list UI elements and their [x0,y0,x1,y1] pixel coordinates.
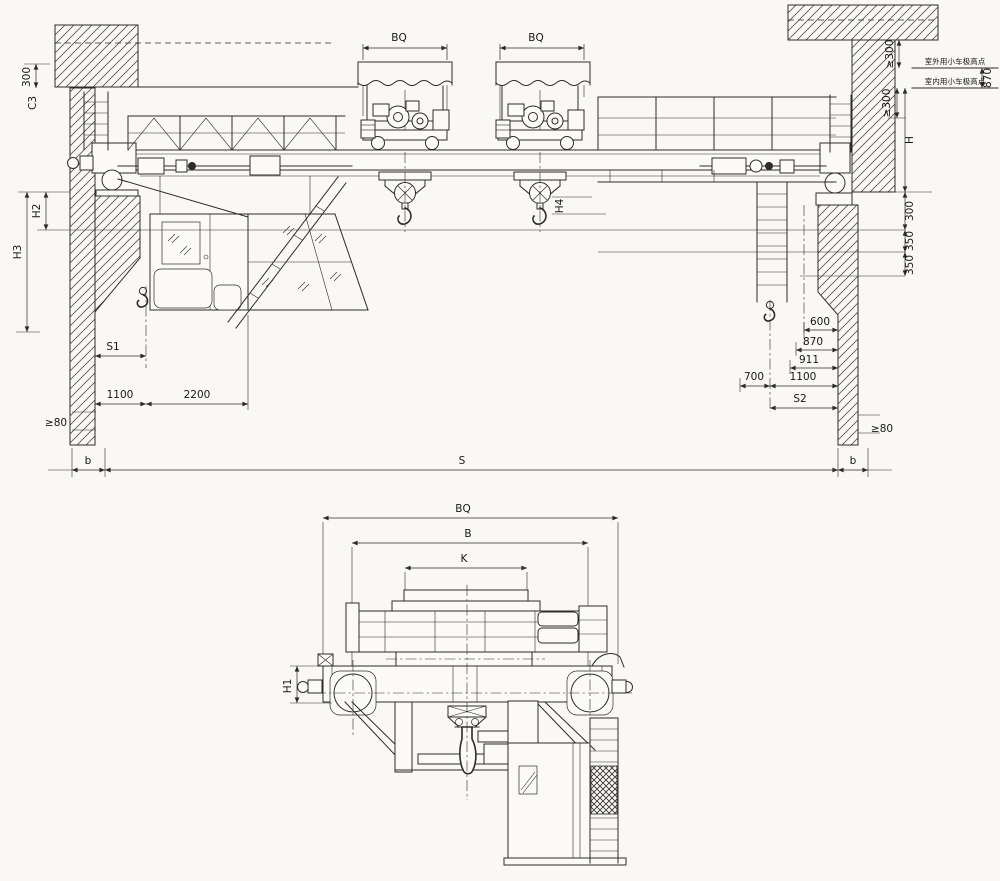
dim-h1-label: H1 [282,679,294,694]
rain-canopy-right [496,62,590,86]
dim-911-label: 911 [799,354,819,366]
dim-bq-left-label: BQ [391,32,406,44]
dim-870-top-label: 870 [982,68,994,88]
walkway-railing-right [598,97,836,150]
dim-h4-label: H4 [554,198,566,213]
dim-2200-label: 2200 [184,389,211,401]
dim-min80-right-label: ≥80 [871,423,893,435]
side-view: BQ B K [282,503,633,865]
dim-b-left-label: b [85,455,92,467]
wall-left-column [70,88,95,445]
end-truck-right [820,143,850,193]
note-indoor-trolley: 室内用小车极高点 [925,76,986,86]
rain-canopy-left [358,62,452,86]
dim-350-a-label: 350 [904,231,916,251]
runway-rail-right [816,193,852,205]
dim-300-right-label: 300 [904,201,916,221]
main-hook [460,727,476,774]
buffer-left [68,158,79,169]
hoist-trolley-left [361,86,449,150]
cab-end-view [478,718,626,865]
ceiling-right-hatch [788,5,938,40]
ceiling-left-hatch [55,25,138,87]
dim-s1-label: S1 [106,341,119,353]
dim-bq-right-label: BQ [528,32,543,44]
dim-h2-label: H2 [31,204,43,219]
dim-span-label: S [459,455,466,467]
dim-min300-lower-label: ≥300 [881,89,893,118]
aux-hook-icon-right [764,301,774,321]
rail-sweep-right [592,654,624,667]
cab-ladder [590,718,618,863]
dim-700-label: 700 [744,371,764,383]
c-clearance-label: C3 [27,96,39,110]
dim-min300-upper-label: ≥300 [884,40,896,69]
cab-door-window [519,766,537,794]
dim-h3-label: H3 [12,245,24,260]
drawing-canvas: BQ BQ 300 C3 室外用小车极高点 室内用小车极高点 ≥300 870 … [0,0,1000,881]
dim-b-right-label: b [850,455,857,467]
dim-k-label: K [461,553,469,565]
operator-cab [118,176,368,328]
dim-span-row: b S b [48,448,892,477]
cab-window [162,222,200,264]
dim-min80-left-label: ≥80 [45,417,67,429]
hoist-trolley-right [496,86,584,150]
dim-600-label: 600 [810,316,830,328]
right-ladder [757,182,787,302]
dim-s2-label: S2 [793,393,806,405]
front-view: BQ BQ 300 C3 室外用小车极高点 室内用小车极高点 ≥300 870 … [12,5,998,477]
top-right-notes: 室外用小车极高点 室内用小车极高点 ≥300 870 ≥300 [881,40,998,118]
dim-min80-right: ≥80 [858,415,893,435]
dim-bq-side-label: BQ [455,503,470,515]
dim-350-b-label: 350 [904,255,916,275]
note-outdoor-trolley: 室外用小车极高点 [925,56,986,66]
wall-left-corbel [95,196,140,312]
walkway-railing-left [128,116,345,150]
trolley-end-view [346,590,607,666]
dim-1100-left-label: 1100 [107,389,134,401]
runway-rail-left [96,190,138,196]
dim-300-top-left-label: 300 [21,67,33,87]
dim-1100-right-label: 1100 [790,371,817,383]
dim-b-side-label: B [464,528,471,540]
crane-outline-drawing: BQ BQ 300 C3 室外用小车极高点 室内用小车极高点 ≥300 870 … [0,0,1000,881]
dim-h-label: H [904,136,916,144]
dim-h4: H4 [552,197,606,214]
cab-ladder-mesh [591,766,617,814]
dim-870-right-label: 870 [803,336,823,348]
